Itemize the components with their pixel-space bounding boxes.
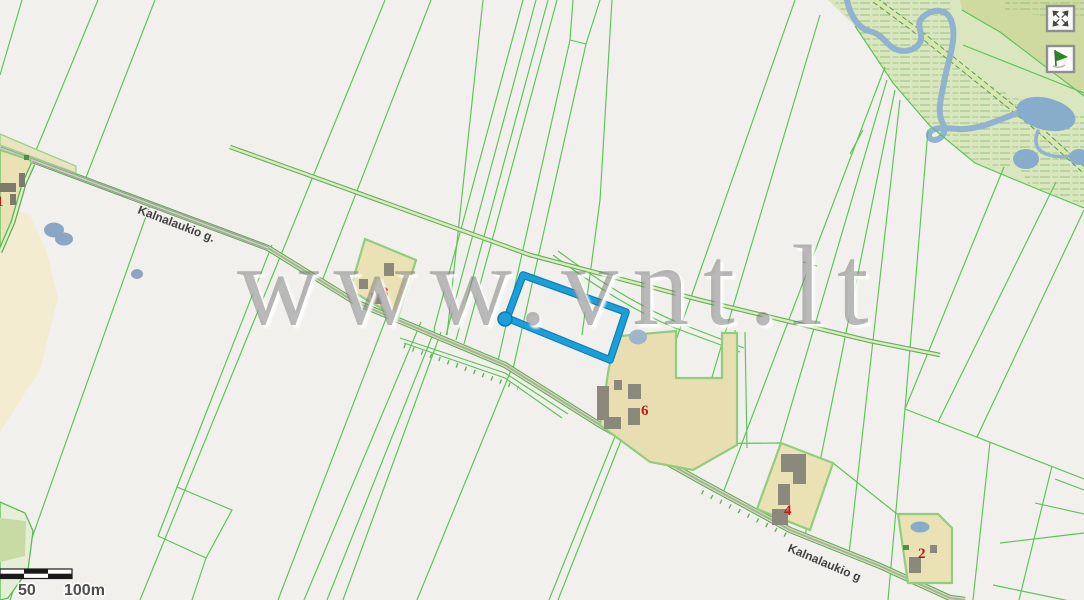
svg-text:www.vnt.lt: www.vnt.lt xyxy=(237,222,883,349)
svg-text:6: 6 xyxy=(641,403,649,419)
svg-text:50: 50 xyxy=(18,582,36,599)
svg-text:4: 4 xyxy=(784,503,792,519)
svg-text:2: 2 xyxy=(918,546,926,562)
svg-text:1: 1 xyxy=(0,194,4,210)
svg-text:100m: 100m xyxy=(64,582,105,599)
